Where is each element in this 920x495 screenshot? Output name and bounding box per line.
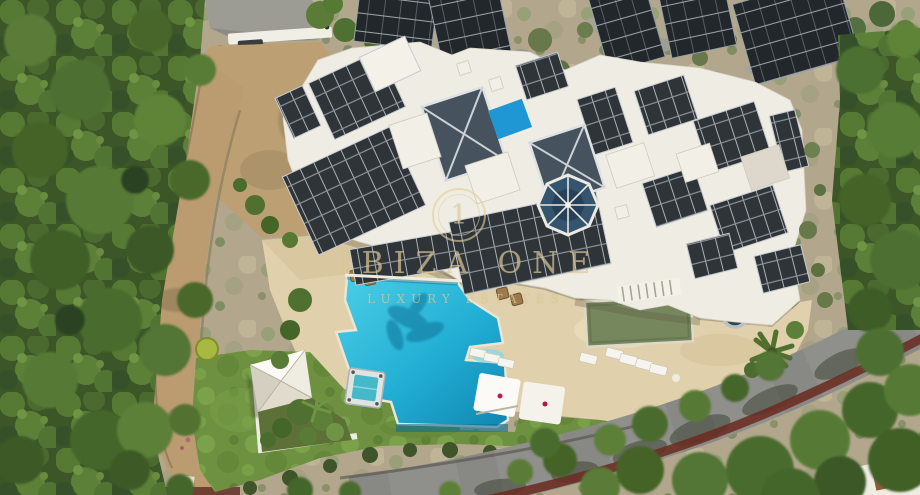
- dome-skylight: [538, 175, 598, 235]
- infinity-edge-channel: [396, 424, 508, 432]
- forest-right: [832, 22, 920, 332]
- side-table: [672, 374, 680, 382]
- scene-canvas: [0, 0, 920, 495]
- aerial-photo: 1 IBIZA ONE LUXURY ESTATES: [0, 0, 920, 495]
- jacuzzi: [345, 368, 386, 409]
- villa: [275, 36, 810, 325]
